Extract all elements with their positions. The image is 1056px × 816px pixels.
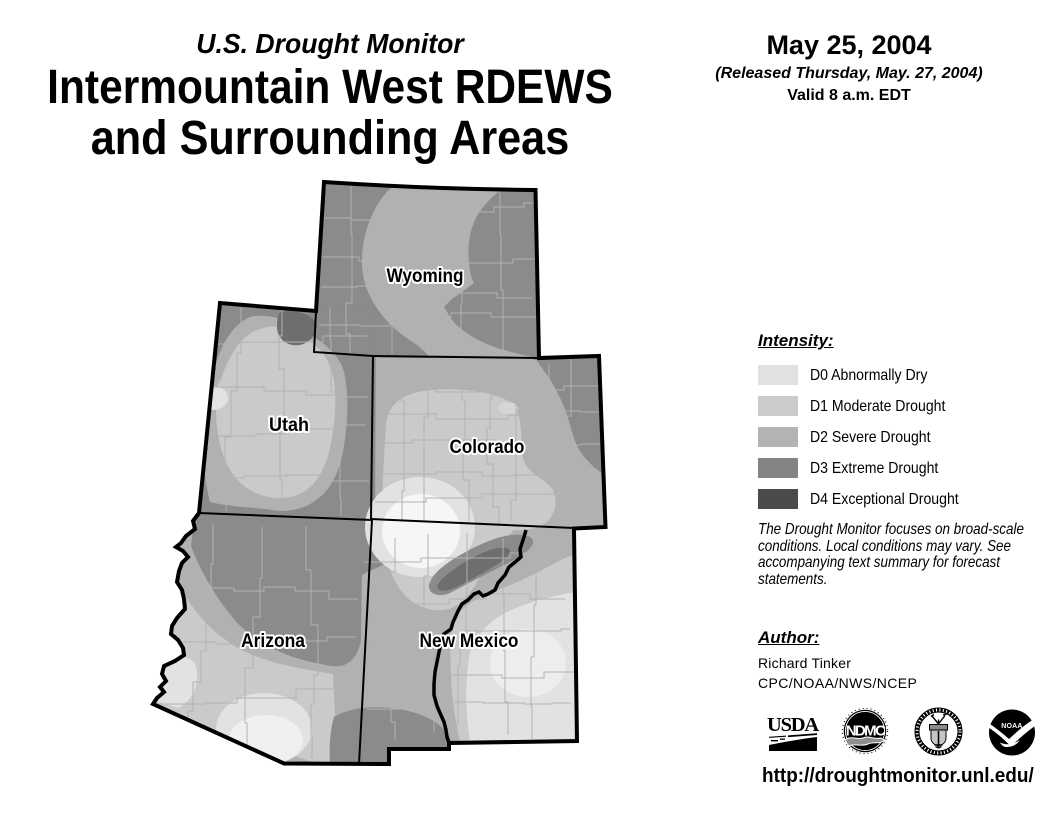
svg-text:USDA: USDA bbox=[767, 714, 819, 736]
svg-text:Colorado: Colorado bbox=[450, 436, 525, 458]
svg-text:Wyoming: Wyoming bbox=[387, 265, 464, 287]
svg-text:NOAA: NOAA bbox=[1001, 723, 1022, 730]
svg-text:Utah: Utah bbox=[269, 414, 309, 436]
svg-text:Arizona: Arizona bbox=[241, 630, 305, 652]
svg-text:New Mexico: New Mexico bbox=[420, 630, 519, 652]
